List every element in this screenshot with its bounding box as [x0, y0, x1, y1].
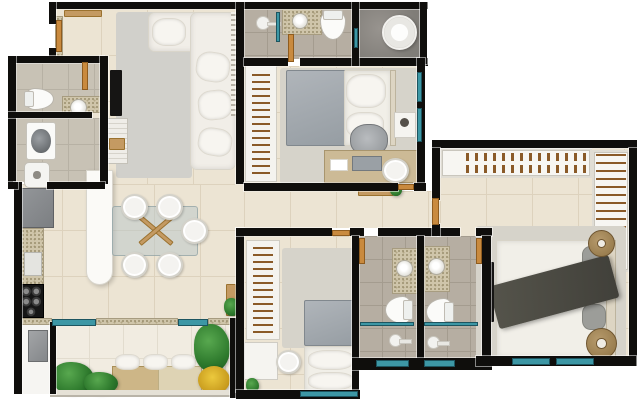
wall-segment	[414, 183, 426, 191]
washing-machine	[26, 122, 56, 160]
bathroom-b-sink	[428, 258, 445, 275]
window-glass	[417, 108, 422, 142]
door-leaf	[82, 62, 88, 90]
window-glass	[417, 72, 422, 102]
wall-segment	[432, 224, 440, 236]
door-leaf	[332, 230, 350, 236]
bathroom-a-sink	[396, 260, 413, 277]
wall-segment	[432, 148, 440, 200]
wall-segment	[420, 2, 427, 64]
door-leaf	[56, 20, 62, 52]
master-side-table	[586, 328, 617, 359]
dining-chair	[121, 194, 148, 220]
bedroom3-chair	[276, 350, 301, 374]
nightstand-lamp	[400, 118, 409, 127]
desk-chair	[382, 158, 409, 183]
window-glass	[354, 28, 358, 48]
apartment-floor-plan	[0, 0, 642, 400]
wall-segment	[100, 56, 108, 184]
dining-chair	[156, 194, 183, 220]
bedroom3-pillow	[308, 372, 354, 390]
window-glass	[512, 358, 550, 365]
bedroom3-desk	[244, 342, 278, 380]
dining-chair	[181, 218, 208, 244]
door-leaf	[288, 34, 294, 62]
door-leaf	[476, 238, 482, 264]
bathroom-a-toilet	[385, 296, 413, 324]
bedroom2-wardrobe	[245, 64, 277, 182]
wall-segment	[8, 56, 104, 63]
bathroom-a-shower-head	[389, 334, 402, 347]
wall-segment	[244, 183, 398, 191]
living-tv	[110, 70, 122, 116]
wall-segment	[14, 182, 22, 394]
closet-shoe-row	[466, 153, 588, 161]
wall-segment	[236, 228, 332, 236]
wall-segment	[432, 140, 637, 148]
master-side-table	[588, 230, 615, 257]
bench-cushion	[115, 354, 140, 370]
kitchen-appliance	[24, 252, 42, 276]
wall-segment	[300, 58, 428, 66]
service-heater	[28, 330, 48, 362]
wall-segment	[47, 182, 105, 189]
bedroom2-pillow	[346, 74, 386, 108]
window-glass	[276, 12, 280, 42]
dining-chair	[121, 252, 148, 278]
balcony-tall-plant	[194, 324, 230, 372]
wall-segment	[8, 56, 16, 186]
wall-segment	[350, 228, 364, 236]
bedroom3-wardrobe	[246, 240, 280, 340]
window-glass	[424, 360, 455, 367]
bedroom3-pillow	[308, 350, 354, 370]
window-glass	[52, 319, 96, 326]
wall-segment	[244, 58, 288, 66]
window-glass	[178, 319, 208, 326]
hallway-floor	[244, 191, 432, 228]
wall-segment	[236, 2, 244, 184]
closet-shoe-row	[466, 165, 588, 173]
wall-segment	[8, 182, 18, 189]
master-bed-pillow	[582, 304, 606, 330]
wall-segment	[476, 228, 492, 236]
wall-segment	[352, 358, 492, 370]
wall-segment	[438, 228, 460, 236]
door-leaf	[432, 198, 439, 225]
window-glass	[376, 360, 409, 367]
door-leaf	[398, 184, 414, 190]
sofa-chaise-cushion	[152, 18, 186, 46]
wall-segment	[8, 112, 92, 118]
bedroom2-bed-blanket	[286, 70, 346, 146]
balcony-parapet	[50, 390, 238, 397]
door-leaf	[359, 238, 365, 264]
window-sill	[96, 318, 178, 325]
wall-segment	[49, 2, 56, 24]
round-shower-tray	[382, 15, 417, 50]
shower-head	[256, 16, 270, 30]
wall-segment	[50, 322, 56, 394]
window-glass	[424, 322, 478, 326]
wall-segment	[352, 236, 359, 394]
bench-cushion	[143, 354, 168, 370]
dining-chair	[156, 252, 183, 278]
desk-paper	[330, 159, 348, 171]
tv-cabinet-box	[109, 138, 125, 150]
window-glass	[556, 358, 594, 365]
window-glass	[360, 322, 414, 326]
bath-sink	[292, 13, 308, 29]
wall-segment	[236, 228, 244, 392]
wall-segment	[482, 236, 491, 364]
entry-shelf	[64, 10, 102, 17]
bathroom-b-shower-head	[427, 336, 440, 349]
wall-segment	[629, 148, 637, 366]
window-glass	[300, 391, 358, 397]
wall-segment	[417, 236, 424, 362]
wall-segment	[378, 228, 438, 236]
desk-laptop	[352, 156, 382, 171]
bench-cushion	[171, 354, 196, 370]
bedroom3-bed-blanket	[304, 300, 358, 346]
